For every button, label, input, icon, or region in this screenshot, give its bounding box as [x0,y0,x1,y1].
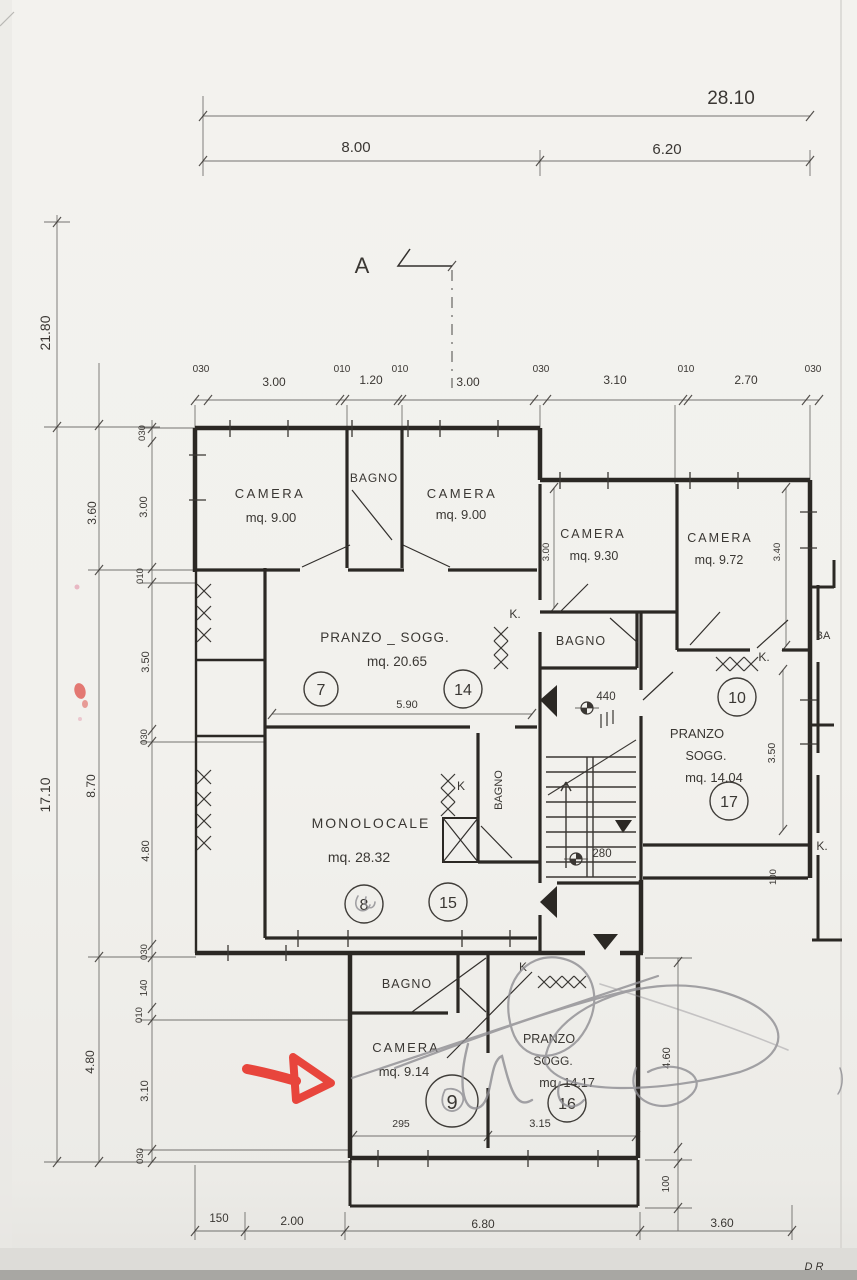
drain-marker-440 [575,702,599,714]
section-label: A [355,253,370,278]
door-triangle-icon [615,820,632,833]
dim-label: 3.00 [456,375,480,389]
room-name: BAGNO [493,770,505,810]
kitchen-label: K [457,779,465,793]
dim-seg-left: 8.00 [341,139,370,156]
door-triangle-icon [540,685,557,717]
room-area: mq. 9.00 [246,510,297,525]
dim-label: 3.50 [140,651,152,672]
dim-label: 2.70 [734,373,758,387]
room-area: mq. 20.65 [367,654,427,669]
dim-label: 3.40 [772,543,783,562]
room-name: SOGG. [686,749,727,763]
stair-marker-label: 440 [596,691,615,703]
room-area: mq. 9.30 [570,549,619,563]
dim-label: 030 [139,944,150,960]
dim-label: 1.20 [359,373,383,387]
dim-label: 010 [334,364,351,375]
kitchen-label: K. [816,839,827,853]
scanned-floor-plan-sheet: 28.10 8.00 6.20 A 030 3.00 010 1.20 010 … [0,0,857,1280]
door-triangle-icon [593,934,618,950]
pencil-signature [463,1044,532,1108]
room-name: CAMERA [427,486,498,501]
dim-label: 100 [768,869,779,885]
red-annotations [73,585,331,1101]
room-name: BAGNO [350,471,398,485]
room-area: mq. 9.00 [436,507,487,522]
room-name: PRANZO [670,726,724,741]
room-area: mq. 9.72 [695,553,744,567]
room-area: mq. 14.04 [685,770,743,785]
red-blob-mark [82,700,88,708]
dim-label: 4.80 [83,1050,97,1074]
dim-label: 4.60 [661,1047,673,1068]
dim-label: 3.15 [529,1118,550,1130]
dim-label: 295 [392,1118,410,1130]
dim-label: 3.60 [710,1216,734,1230]
dim-label: 4.80 [140,840,152,861]
dim-label: 030 [135,1148,146,1164]
red-blob-mark [73,682,88,700]
dim-label: 3.00 [262,375,286,389]
dim-label: 010 [678,364,695,375]
dim-label: 5.90 [396,699,417,711]
unit-number: 14 [454,682,472,699]
stair-marker-label: 280 [592,848,611,860]
dim-label: 3.10 [603,373,627,387]
balcony-walls [350,1160,638,1206]
dim-label: 010 [392,364,409,375]
dim-label: 100 [661,1175,672,1192]
room-name: BAGNO [556,634,606,648]
dim-label: 8.70 [84,774,98,798]
bottom-scan-strip [0,1270,857,1280]
red-arrow-shaft [247,1069,296,1081]
dim-label: 010 [134,1007,145,1023]
pink-dot-mark [78,717,82,721]
room-name: CAMERA [235,486,306,501]
dim-label: 2.00 [280,1214,304,1228]
room-area: mq. 14.17 [539,1076,595,1090]
dim-label: 17.10 [37,777,53,812]
dim-label: 150 [209,1213,228,1225]
room-name: CAMERA [560,527,625,541]
handwritten-initials: D R [805,1261,824,1273]
dim-seg-right: 6.20 [652,141,681,158]
dim-label: 030 [193,364,210,375]
drain-marker-280 [564,853,588,865]
dim-label: 010 [135,568,146,584]
dim-label: 3.10 [139,1080,151,1101]
right-neighbor-walls [810,560,842,940]
dim-label: 6.80 [471,1217,495,1231]
kitchen-label: K. [509,607,520,621]
dim-label: 030 [805,364,822,375]
unit-number: 7 [317,682,326,699]
staircase [546,702,636,877]
left-edge-shade [0,0,12,1280]
garden-walls [195,572,265,953]
kitchen-label: K. [758,650,769,664]
unit-number: 10 [728,690,746,707]
room-name: CAMERA [687,531,752,545]
dim-label: 030 [533,364,550,375]
room-name: BAGNO [382,977,432,991]
dim-line-path [44,96,819,1240]
dim-label: 3.50 [766,743,778,764]
stair-balusters [601,710,613,728]
dim-label: 21.80 [37,315,53,350]
dim-label: 140 [139,979,150,996]
unit-number: 15 [439,895,457,912]
room-name: PRANZO _ SOGG. [320,630,450,645]
door-triangle-icon [540,886,557,918]
section-arrow [398,249,452,266]
floor-plan-drawing: 28.10 8.00 6.20 A 030 3.00 010 1.20 010 … [0,0,857,1280]
dim-label: 3.00 [541,543,552,562]
dim-label: 030 [137,425,148,441]
dim-label: 3.60 [85,501,99,525]
dim-label: 3.00 [138,496,150,517]
dim-total-width: 28.10 [707,88,755,109]
stair-steps [546,757,636,877]
room-area: mq. 28.32 [328,849,390,865]
unit-number: 17 [720,794,738,811]
pencil-line [600,984,788,1050]
dimension-tick-marks [53,111,823,1236]
dimension-lines [44,96,823,1240]
dim-label: 030 [139,729,150,745]
room-name-partial: BA [816,630,831,642]
unit-number: 16 [558,1096,576,1113]
stair-direction-arrow [561,782,571,868]
pink-dot-mark [75,585,80,590]
room-name: MONOLOCALE [312,815,431,831]
